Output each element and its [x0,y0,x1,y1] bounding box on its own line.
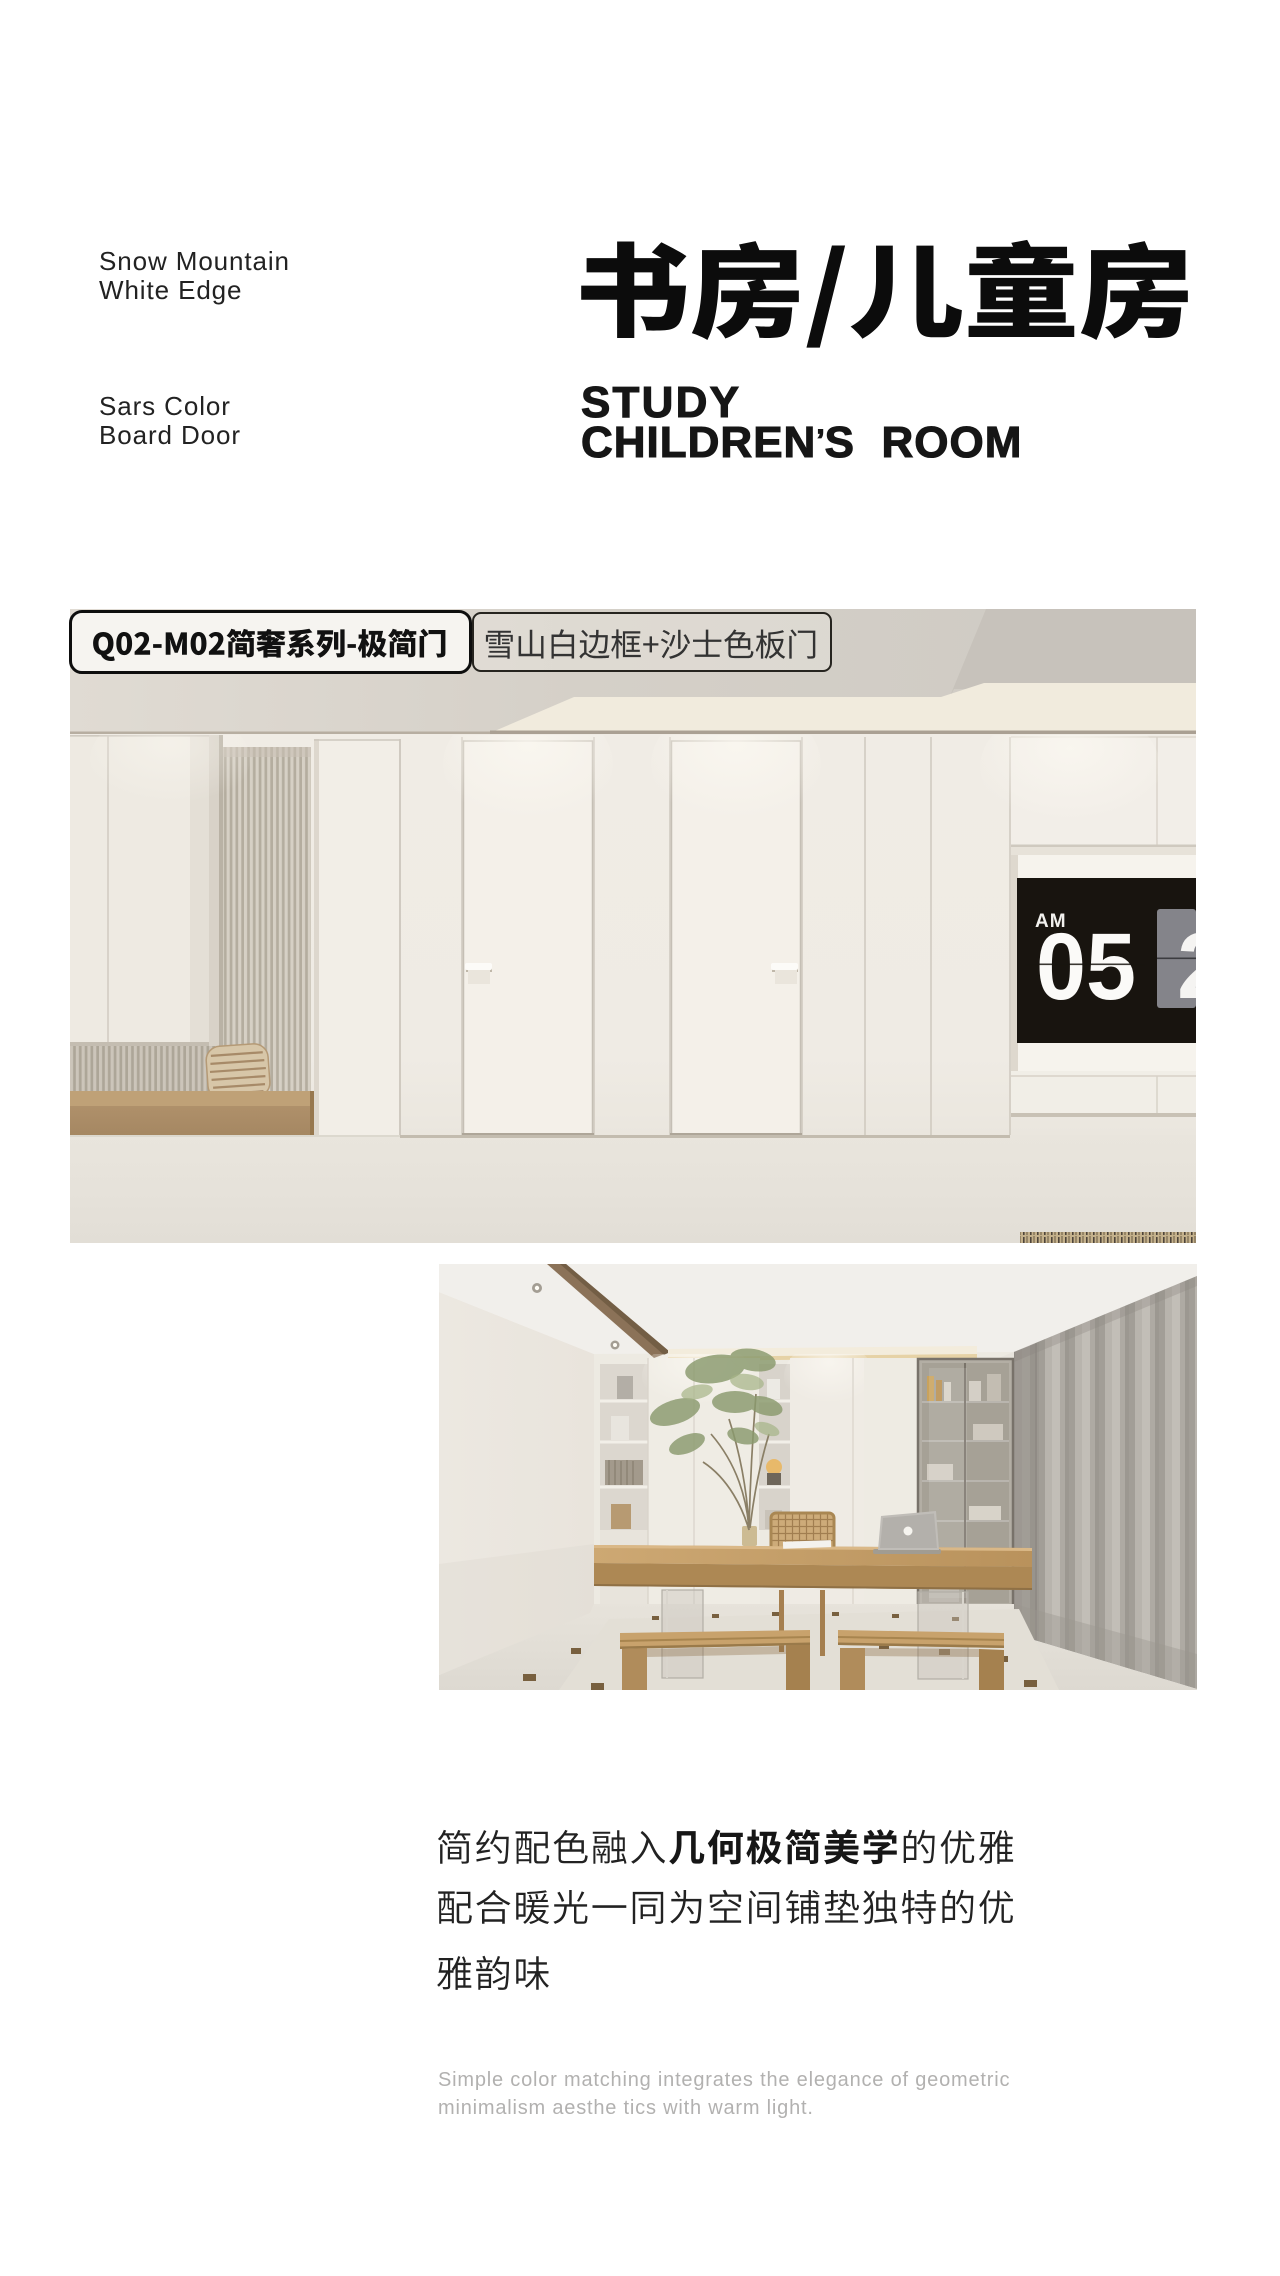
svg-text:2: 2 [1177,913,1196,1018]
svg-text:05: 05 [1036,914,1136,1020]
